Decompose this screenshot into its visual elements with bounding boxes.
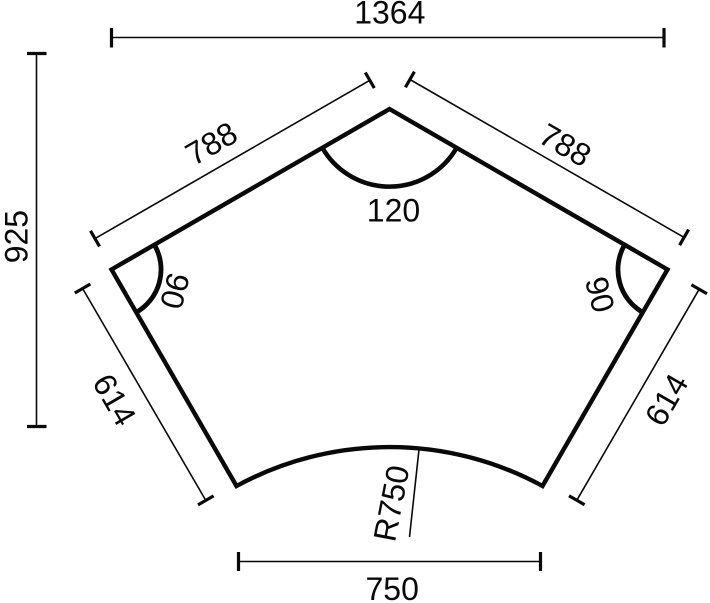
svg-text:788: 788 xyxy=(179,115,243,173)
svg-text:R750: R750 xyxy=(366,462,416,544)
svg-text:120: 120 xyxy=(367,193,420,229)
svg-text:788: 788 xyxy=(533,116,597,174)
svg-text:925: 925 xyxy=(0,210,34,263)
svg-text:750: 750 xyxy=(366,571,419,603)
svg-text:1364: 1364 xyxy=(354,0,425,30)
svg-text:614: 614 xyxy=(638,368,696,432)
svg-text:90: 90 xyxy=(578,273,622,317)
